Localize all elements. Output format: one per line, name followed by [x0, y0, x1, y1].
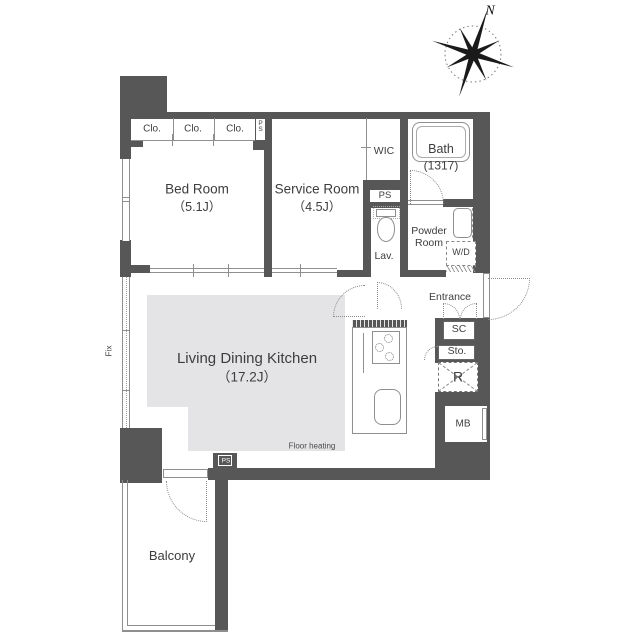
wall-behind-fridge [477, 363, 490, 392]
closet-label: Clo. [226, 124, 244, 135]
balcony-inner-bottom [127, 625, 215, 626]
wall-bottom [208, 468, 490, 480]
kitchen-sink [374, 389, 401, 425]
pipe-shaft-top-box: PS [255, 118, 266, 141]
wall-left-mid [120, 240, 131, 277]
stove-burner-icon [384, 334, 393, 343]
toilet-bowl [377, 217, 395, 242]
wall-balcony-right [215, 472, 228, 632]
floor-plan: Clo. Clo. Clo. PS Fix PS [0, 0, 640, 640]
refrigerator-label: R [453, 369, 463, 384]
pipe-shaft-bottom-inner: PS [218, 455, 232, 466]
balcony-outer-left [122, 480, 123, 632]
shoe-closet-label: SC [452, 324, 467, 336]
entrance-label: Entrance [429, 292, 471, 304]
wall-wic-bottom [363, 180, 408, 188]
shoe-closet-door-arc [443, 303, 460, 319]
lavatory-door-arc [377, 282, 402, 309]
powder-room-label-2: Room [415, 238, 443, 250]
fixed-window-center-line [126, 277, 127, 428]
wall-mb-left [435, 406, 445, 442]
ldk-door-arc [333, 285, 365, 317]
wall-hall-piece [337, 270, 371, 277]
balcony-label: Balcony [149, 549, 195, 563]
partition-tick [228, 264, 229, 277]
partition-tick [300, 264, 301, 277]
wall-stub [131, 265, 150, 273]
wic-label: WIC [374, 146, 394, 158]
bath-size: (1317) [424, 159, 459, 172]
window-sill [122, 201, 130, 202]
closet-door-tick [213, 134, 214, 146]
pipe-shaft-top-label: PS [257, 120, 264, 132]
wall-below-fridge [435, 392, 490, 406]
closet-bottom-line [131, 140, 256, 141]
stove-burner-icon [385, 352, 394, 361]
wall-left-upper [120, 112, 131, 159]
storage-door-arc [424, 346, 438, 360]
compass-north-label: N [485, 3, 494, 18]
balcony-inner-left [127, 480, 128, 626]
meter-box-label: MB [456, 419, 471, 430]
washbasin-dashed-edge [472, 208, 473, 238]
closet-divider [214, 118, 215, 140]
wall-stub [253, 140, 272, 150]
wic-tick [361, 147, 371, 148]
washbasin [453, 208, 472, 238]
wall-powder-bottom [400, 270, 446, 277]
stove-burner-icon [375, 343, 384, 352]
wic-partition-line [366, 118, 367, 180]
toilet-tank [376, 209, 396, 217]
service-room-name: Service Room [275, 183, 360, 198]
window-sill [122, 390, 130, 391]
bedroom-name: Bed Room [165, 183, 229, 198]
wall-left-bottom-block [120, 428, 162, 483]
sliding-partition [272, 268, 337, 273]
powder-room-label-1: Powder [411, 226, 447, 238]
floor-heating-label: Floor heating [289, 443, 336, 452]
service-room-area: （4.5J） [293, 201, 342, 215]
pipe-shaft-bottom-label: PS [222, 457, 231, 464]
counter-edge-line [363, 333, 364, 373]
bath-name: Bath [428, 143, 454, 157]
compass-rose-icon [418, 0, 528, 104]
meter-box-slit [482, 408, 487, 440]
balcony-door-leaf [163, 469, 208, 478]
wall-stub [131, 140, 143, 147]
wall-bottom-right-block [435, 442, 490, 468]
storage-label: Sto. [448, 346, 467, 358]
window-sill [122, 197, 130, 198]
entrance-door-arc [488, 278, 530, 320]
wall-mb-right [487, 406, 490, 442]
pipe-shaft-mid-label: PS [379, 191, 392, 201]
washer-dryer-label: W/D [452, 248, 470, 258]
shoe-closet-door-arc [460, 303, 477, 319]
closet-label: Clo. [184, 124, 202, 135]
closet-divider [173, 118, 174, 140]
ldk-name: Living Dining Kitchen [177, 351, 317, 368]
lavatory-label: Lav. [374, 251, 393, 263]
kitchen-hood-strip [352, 320, 407, 327]
sliding-partition [150, 268, 264, 273]
wall-top [120, 112, 490, 119]
ldk-area: （17.2J） [217, 371, 277, 386]
window-sill [122, 330, 130, 331]
fixed-window-label: Fix [104, 345, 113, 356]
bath-door-arc [410, 170, 444, 204]
bedroom-window [122, 159, 130, 241]
wall-top-left-block [120, 76, 167, 114]
compass [418, 0, 528, 104]
closet-door-tick [172, 134, 173, 146]
wall-bath-bottom [443, 199, 475, 207]
washer-dryer-hatch [446, 266, 476, 272]
balcony-door-arc [166, 481, 207, 522]
bedroom-area: （5.1J） [173, 201, 222, 215]
partition-tick [193, 264, 194, 277]
closet-label: Clo. [143, 124, 161, 135]
balcony-outer-bottom [122, 630, 228, 632]
